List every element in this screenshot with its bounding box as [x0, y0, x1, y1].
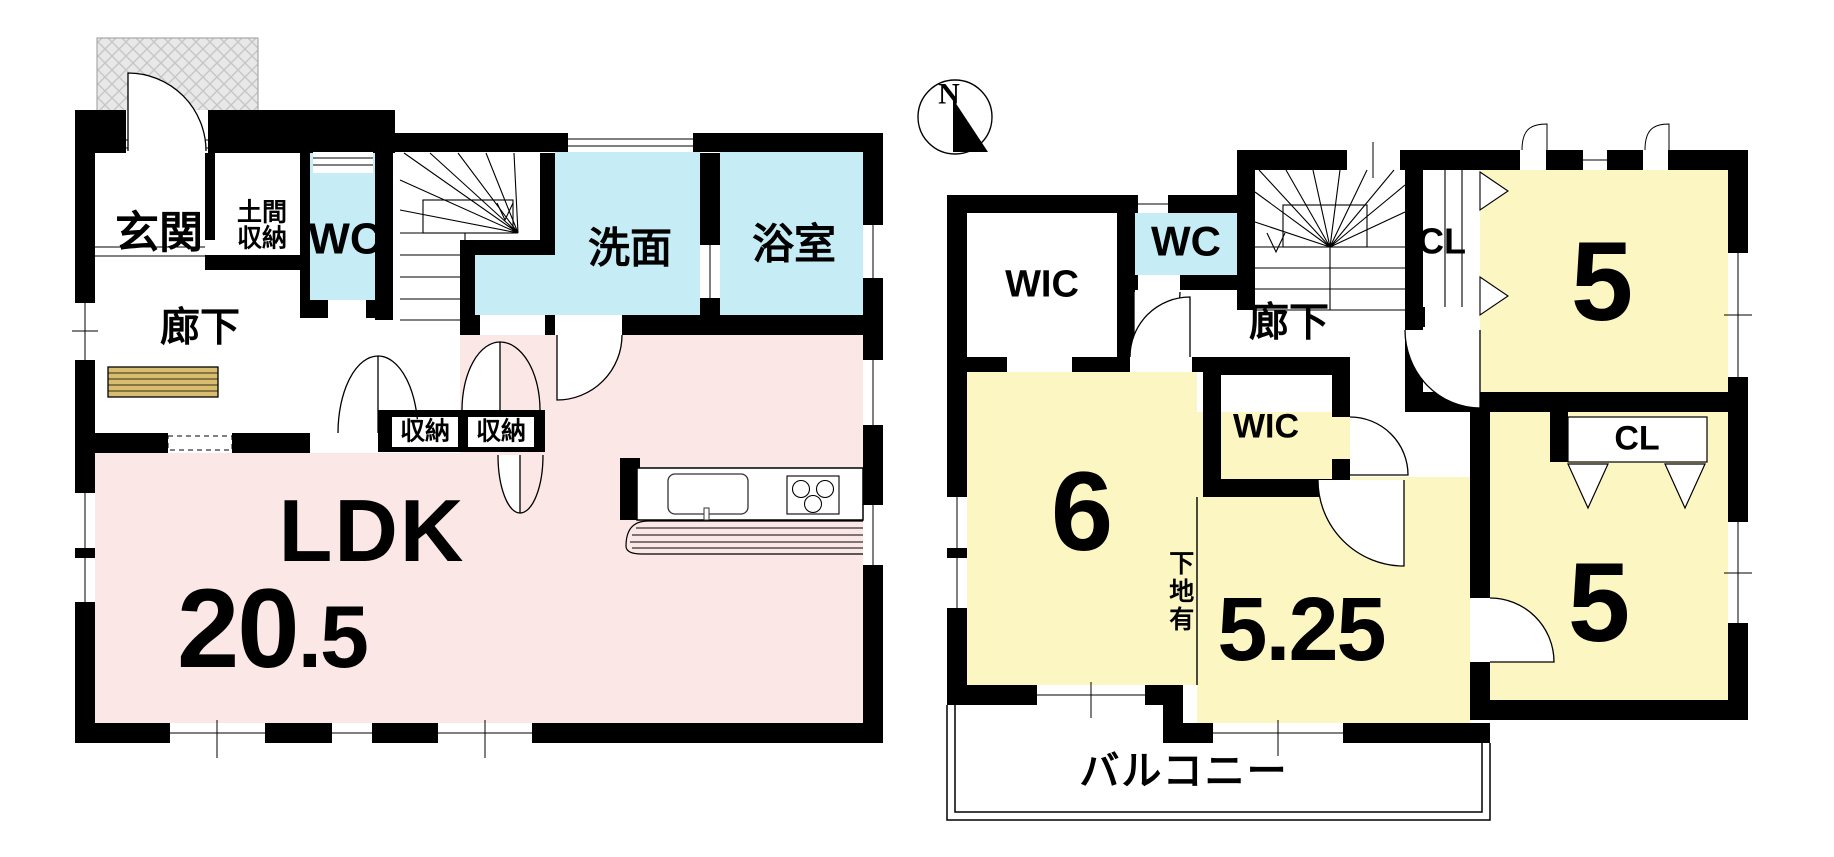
plan-linework-layer: [0, 0, 1834, 857]
room-label-wc-1f: WC: [308, 218, 381, 263]
room-label-corridor-1f: 廊下: [160, 308, 240, 349]
room-label-doma-storage: 土間 収納: [237, 201, 287, 252]
room-label-south-size: 5.25: [1217, 585, 1384, 677]
room-label-washroom: 洗面: [588, 228, 672, 271]
room-label-balcony: バルコニー: [1079, 752, 1288, 793]
room-label-wic-upper: WIC: [1005, 266, 1079, 305]
room-label-wc-2f: WC: [1151, 221, 1221, 264]
room-label-ldk: LDK: [279, 486, 466, 576]
room-label-wic-center: WIC: [1233, 410, 1299, 445]
room-label-ne-size: 5: [1571, 225, 1631, 339]
wall-backing-note: 下地有: [1166, 550, 1192, 634]
stairs-floor2: [1255, 170, 1405, 310]
shoe-cabinet: [108, 367, 218, 397]
room-label-closet-upper: CL: [1418, 224, 1466, 261]
room-label-ldk-size: 20.5: [177, 572, 367, 686]
room-label-storage-b: 収納: [474, 419, 528, 445]
room-label-west-size: 6: [1051, 455, 1111, 569]
ldk-size-decimal: .5: [298, 587, 367, 686]
compass-north-label: N: [938, 80, 960, 111]
room-label-se-size: 5: [1568, 546, 1628, 660]
floor-plan: 玄関 土間 収納 WC 洗面 浴室 廊下 収納 収納 LDK 20.5 N WI…: [0, 0, 1834, 857]
room-label-entrance: 玄関: [115, 212, 203, 257]
room-label-closet-se: CL: [1614, 422, 1659, 457]
room-label-bathroom: 浴室: [752, 224, 836, 267]
room-label-corridor-2f: 廊下: [1249, 303, 1329, 344]
room-label-storage-a: 収納: [398, 419, 452, 445]
ldk-size-main: 20: [177, 566, 298, 691]
